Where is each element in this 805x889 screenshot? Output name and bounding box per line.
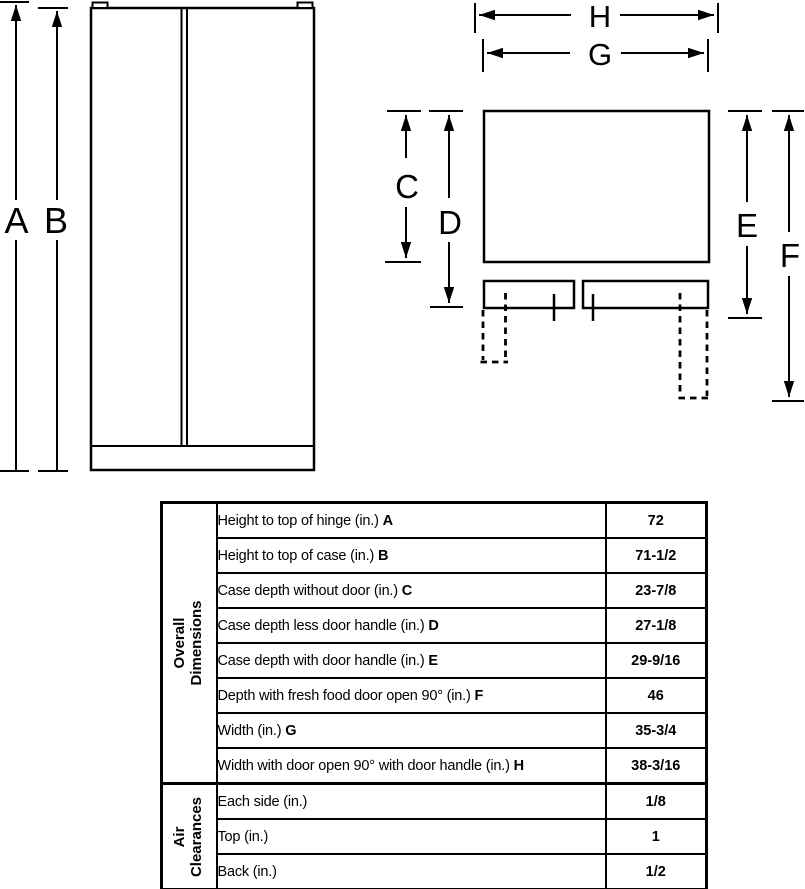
- dim-label-f: F: [780, 237, 800, 274]
- dim-row-value: 46: [606, 678, 707, 713]
- case-top-outline: [484, 111, 709, 262]
- dim-row-label: Height to top of case (in.) B: [217, 538, 606, 573]
- dimension-b: B: [38, 8, 68, 471]
- dim-row-label: Back (in.): [217, 854, 606, 889]
- dim-row-label-text: Case depth without door (in.): [218, 583, 398, 599]
- dim-row-value: 1: [606, 819, 707, 854]
- dimension-g: G: [483, 37, 708, 72]
- dim-row-value: 38-3/16: [606, 748, 707, 784]
- dim-row-value: 29-9/16: [606, 643, 707, 678]
- dimension-d: D: [429, 111, 463, 307]
- dimension-c: C: [385, 111, 421, 262]
- dim-row-value: 71-1/2: [606, 538, 707, 573]
- dim-row-label: Top (in.): [217, 819, 606, 854]
- dim-row-label: Case depth without door (in.) C: [217, 573, 606, 608]
- freezer-door-top: [484, 281, 574, 308]
- table-row: Overall Dimensions Height to top of hing…: [162, 503, 707, 539]
- dim-row-letter: C: [402, 583, 412, 599]
- dim-row-label-text: Each side (in.): [218, 794, 308, 810]
- dim-row-letter: G: [285, 723, 296, 739]
- dim-row-value: 23-7/8: [606, 573, 707, 608]
- dim-row-label: Height to top of hinge (in.) A: [217, 503, 606, 539]
- dim-row-letter: E: [428, 653, 437, 669]
- left-hinge-cap: [93, 3, 108, 9]
- dim-row-label-text: Width (in.): [218, 723, 282, 739]
- dim-label-e: E: [736, 207, 758, 244]
- right-hinge-cap: [298, 3, 313, 9]
- fresh-food-door-top: [583, 281, 708, 308]
- dim-row-label-text: Height to top of case (in.): [218, 548, 375, 564]
- dim-row-label: Depth with fresh food door open 90° (in.…: [217, 678, 606, 713]
- dim-row-letter: A: [383, 513, 393, 529]
- table-row: Back (in.) 1/2: [162, 854, 707, 889]
- dim-row-value: 1/8: [606, 784, 707, 820]
- dim-row-label-text: Depth with fresh food door open 90° (in.…: [218, 688, 471, 704]
- table-row: Height to top of case (in.) B 71-1/2: [162, 538, 707, 573]
- dim-row-letter: F: [474, 688, 483, 704]
- dim-label-d: D: [438, 204, 462, 241]
- doors-top-view: [484, 281, 708, 321]
- dim-row-label: Case depth with door handle (in.) E: [217, 643, 606, 678]
- section-header-line: Overall: [172, 600, 189, 685]
- table-row: Width with door open 90° with door handl…: [162, 748, 707, 784]
- dim-label-g: G: [588, 37, 612, 72]
- fridge-body: [91, 8, 314, 470]
- dim-row-label: Width (in.) G: [217, 713, 606, 748]
- dim-row-value: 72: [606, 503, 707, 539]
- table-row: Case depth without door (in.) C 23-7/8: [162, 573, 707, 608]
- table-row: Depth with fresh food door open 90° (in.…: [162, 678, 707, 713]
- refrigerator-dimension-diagram: A B: [0, 0, 805, 497]
- dim-row-label-text: Case depth with door handle (in.): [218, 653, 425, 669]
- dim-label-h: H: [589, 0, 611, 34]
- table-row: Width (in.) G 35-3/4: [162, 713, 707, 748]
- section-header-air-clearances: Air Clearances: [162, 784, 217, 889]
- dim-label-a: A: [4, 200, 28, 241]
- dim-row-label: Case depth less door handle (in.) D: [217, 608, 606, 643]
- top-view: H G C: [385, 0, 804, 401]
- dim-row-letter: H: [514, 758, 524, 774]
- dim-row-letter: B: [378, 548, 388, 564]
- table-row: Air Clearances Each side (in.) 1/8: [162, 784, 707, 820]
- dim-row-value: 35-3/4: [606, 713, 707, 748]
- table-row: Case depth less door handle (in.) D 27-1…: [162, 608, 707, 643]
- refrigerator-front-outline: [91, 3, 314, 471]
- dim-row-label: Width with door open 90° with door handl…: [217, 748, 606, 784]
- section-header-line: Air: [172, 796, 189, 876]
- dim-label-c: C: [395, 168, 419, 205]
- dim-row-value: 1/2: [606, 854, 707, 889]
- front-view: A B: [0, 2, 314, 471]
- dimension-e: E: [728, 111, 762, 318]
- dim-row-letter: D: [428, 618, 438, 634]
- section-header-overall-dimensions: Overall Dimensions: [162, 503, 217, 784]
- dim-row-label-text: Height to top of hinge (in.): [218, 513, 379, 529]
- dim-label-b: B: [44, 200, 68, 241]
- dim-row-label-text: Back (in.): [218, 864, 277, 880]
- table-row: Top (in.) 1: [162, 819, 707, 854]
- dim-row-label-text: Width with door open 90° with door handl…: [218, 758, 510, 774]
- dim-row-value: 27-1/8: [606, 608, 707, 643]
- dimension-f: F: [772, 111, 804, 401]
- dim-row-label-text: Top (in.): [218, 829, 269, 845]
- dim-row-label: Each side (in.): [217, 784, 606, 820]
- section-header-line: Clearances: [189, 796, 206, 876]
- dim-row-label-text: Case depth less door handle (in.): [218, 618, 425, 634]
- dimension-h: H: [475, 0, 718, 34]
- section-header-line: Dimensions: [189, 600, 206, 685]
- dimension-a: A: [0, 2, 29, 471]
- table-row: Case depth with door handle (in.) E 29-9…: [162, 643, 707, 678]
- spec-sheet-page: A B: [0, 0, 805, 889]
- dimensions-table: Overall Dimensions Height to top of hing…: [160, 501, 708, 889]
